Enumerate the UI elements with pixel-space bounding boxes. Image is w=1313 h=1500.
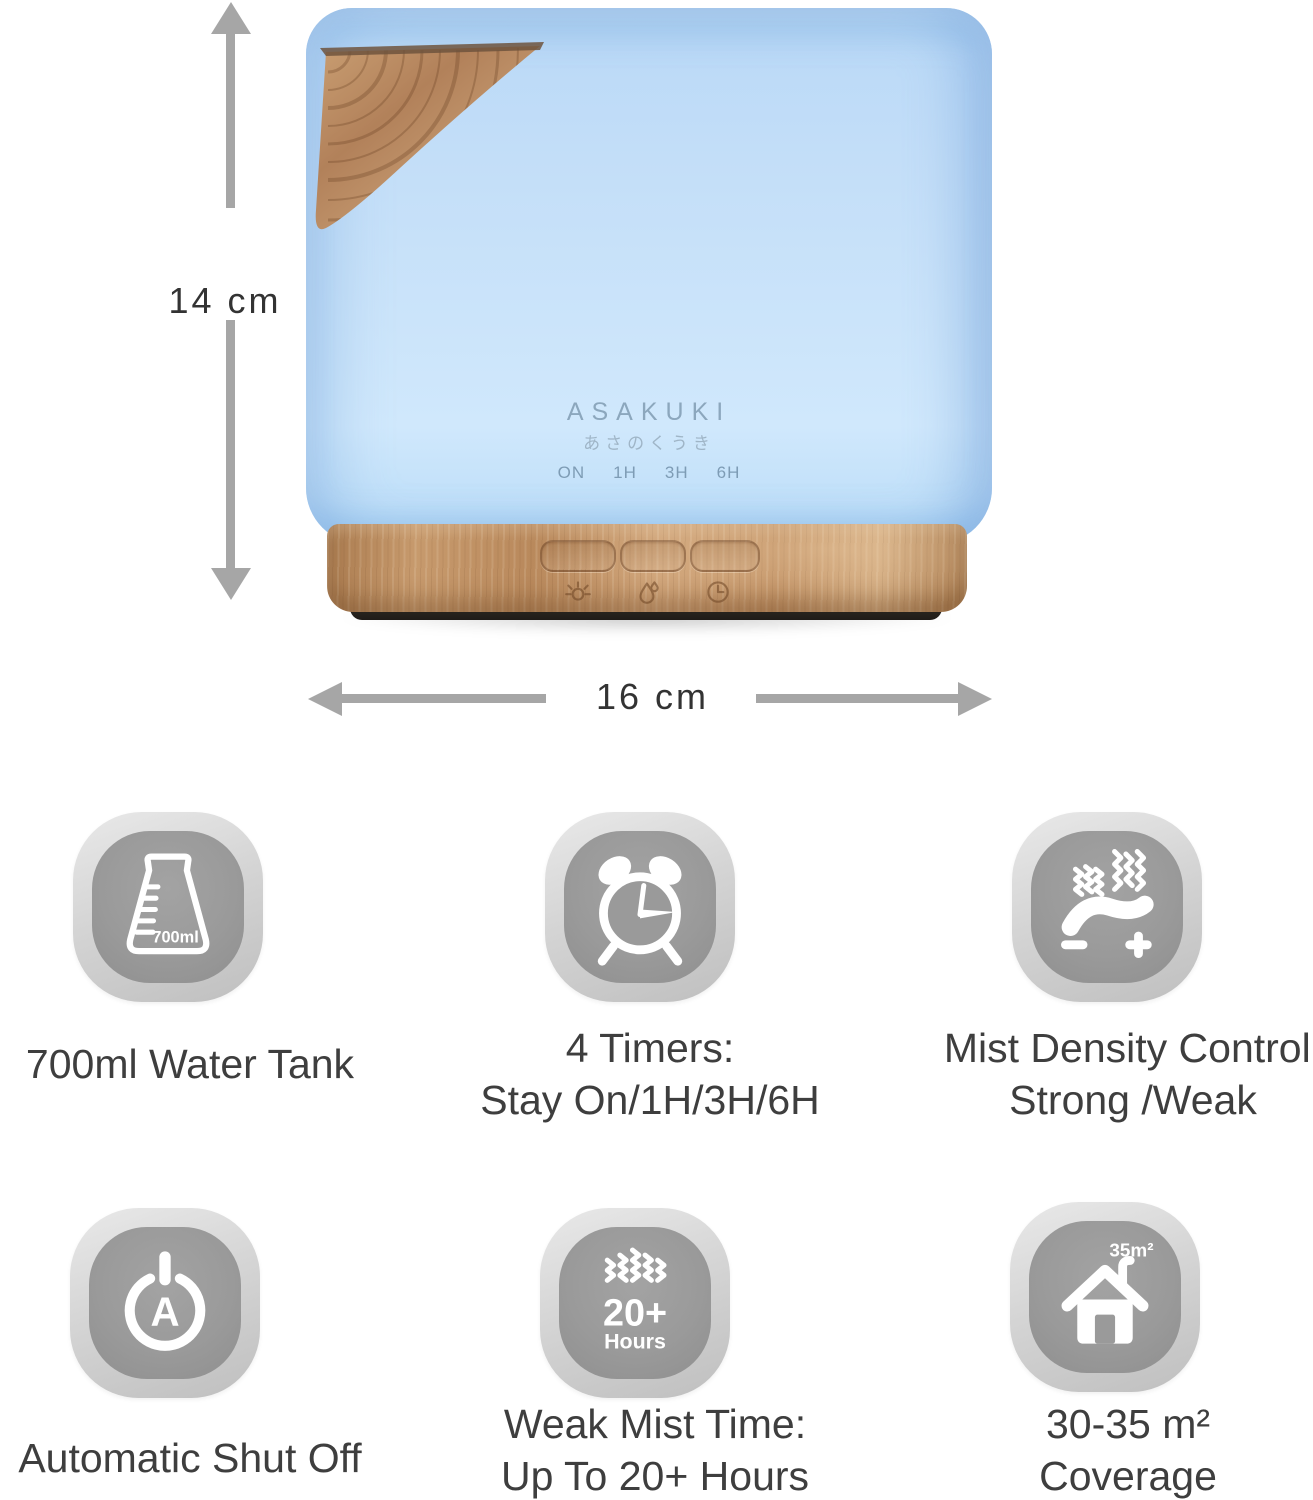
auto-power-icon: A — [102, 1240, 228, 1366]
timer-label-1h: 1H — [613, 463, 637, 483]
timer-label-on: ON — [558, 463, 586, 483]
caption-auto-shutoff: Automatic Shut Off — [0, 1432, 380, 1484]
caption-mist-density: Mist Density Control: Strong /Weak — [933, 1022, 1313, 1126]
brand-subtitle-japanese: あさのくうき — [306, 429, 992, 454]
caption-coverage: 30-35 m² Coverage — [928, 1398, 1313, 1500]
timer-button[interactable] — [690, 540, 760, 572]
light-button[interactable] — [540, 540, 616, 572]
height-arrow-upper-shaft — [226, 30, 235, 208]
height-arrow-down-icon — [211, 568, 251, 600]
timer-label-6h: 6H — [717, 463, 741, 483]
feature-tile-weak-mist-time: 20+ Hours — [540, 1208, 730, 1398]
diffuser-body: ASAKUKI あさのくうき ON 1H 3H 6H — [306, 8, 992, 544]
mist-button[interactable] — [620, 540, 686, 572]
auto-letter-label: A — [150, 1289, 179, 1335]
width-dimension-label: 16 cm — [540, 676, 765, 718]
light-icon — [563, 576, 593, 606]
feature-tile-mist-density — [1012, 812, 1202, 1002]
caption-weak-mist-time: Weak Mist Time: Up To 20+ Hours — [435, 1398, 875, 1500]
height-dimension-label: 14 cm — [140, 280, 310, 322]
mist-density-dial-icon — [1044, 844, 1170, 970]
timer-indicator-labels: ON 1H 3H 6H — [306, 463, 992, 483]
house-coverage-icon: 35m² — [1042, 1234, 1168, 1360]
feature-tile-timers — [545, 812, 735, 1002]
feature-tile-coverage: 35m² — [1010, 1202, 1200, 1392]
caption-water-tank: 700ml Water Tank — [0, 1038, 380, 1090]
mist-icon — [633, 576, 663, 606]
wood-corner-decoration — [304, 22, 564, 252]
diffuser-wood-base — [327, 524, 967, 612]
width-arrow-right-shaft — [756, 694, 962, 703]
height-arrow-lower-shaft — [226, 320, 235, 570]
caption-timers: 4 Timers: Stay On/1H/3H/6H — [430, 1022, 870, 1126]
plus-icon — [1130, 936, 1148, 954]
feature-tile-water-tank: 700ml — [73, 812, 263, 1002]
water-tank-beaker-icon: 700ml — [105, 844, 231, 970]
timer-icon — [703, 576, 733, 606]
width-arrow-right-icon — [958, 682, 992, 716]
timer-label-3h: 3H — [665, 463, 689, 483]
brand-logo: ASAKUKI — [306, 398, 992, 427]
feature-tile-auto-shutoff: A — [70, 1208, 260, 1398]
hours-unit-label: Hours — [604, 1329, 666, 1353]
mist-hours-icon: 20+ Hours — [572, 1240, 698, 1366]
width-arrow-left-shaft — [336, 694, 546, 703]
alarm-clock-icon — [577, 844, 703, 970]
product-infographic: 14 cm — [0, 0, 1313, 1500]
beaker-capacity-label: 700ml — [152, 928, 198, 946]
